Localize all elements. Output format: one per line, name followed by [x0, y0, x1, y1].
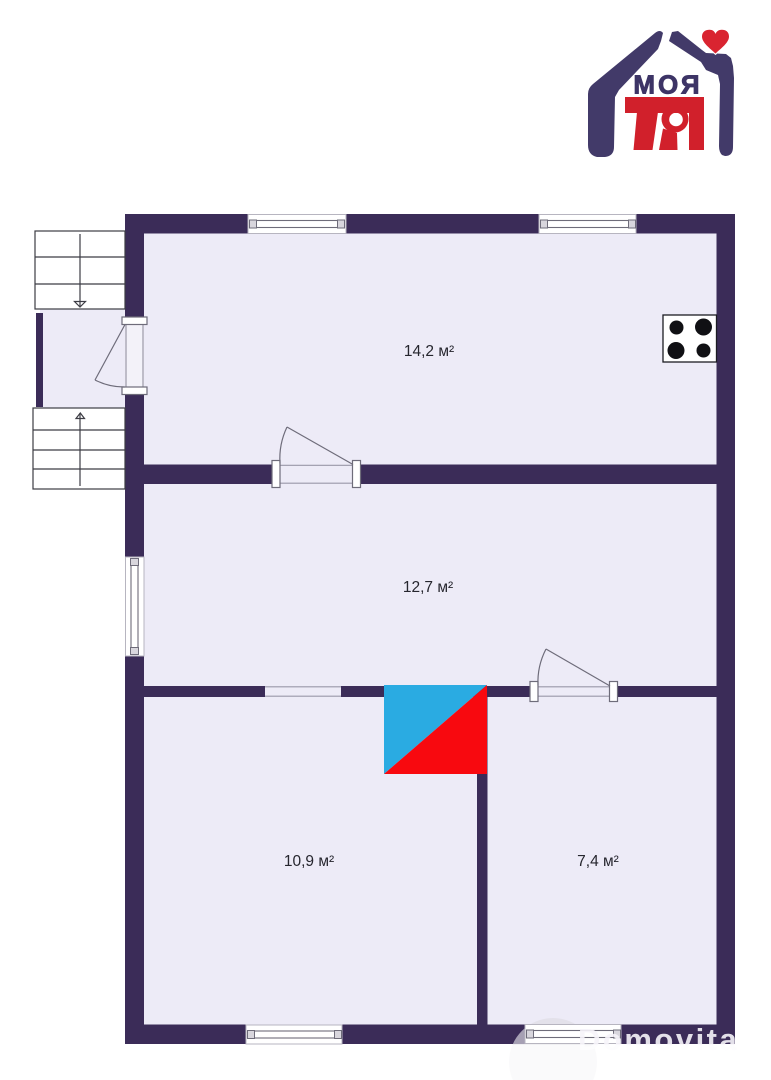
svg-text:7,4 м²: 7,4 м² [577, 853, 619, 870]
svg-text:12,7 м²: 12,7 м² [403, 579, 453, 596]
svg-text:МОЯ: МОЯ [633, 70, 702, 100]
svg-text:14,2 м²: 14,2 м² [404, 343, 454, 360]
svg-text:10,9 м²: 10,9 м² [284, 853, 334, 870]
